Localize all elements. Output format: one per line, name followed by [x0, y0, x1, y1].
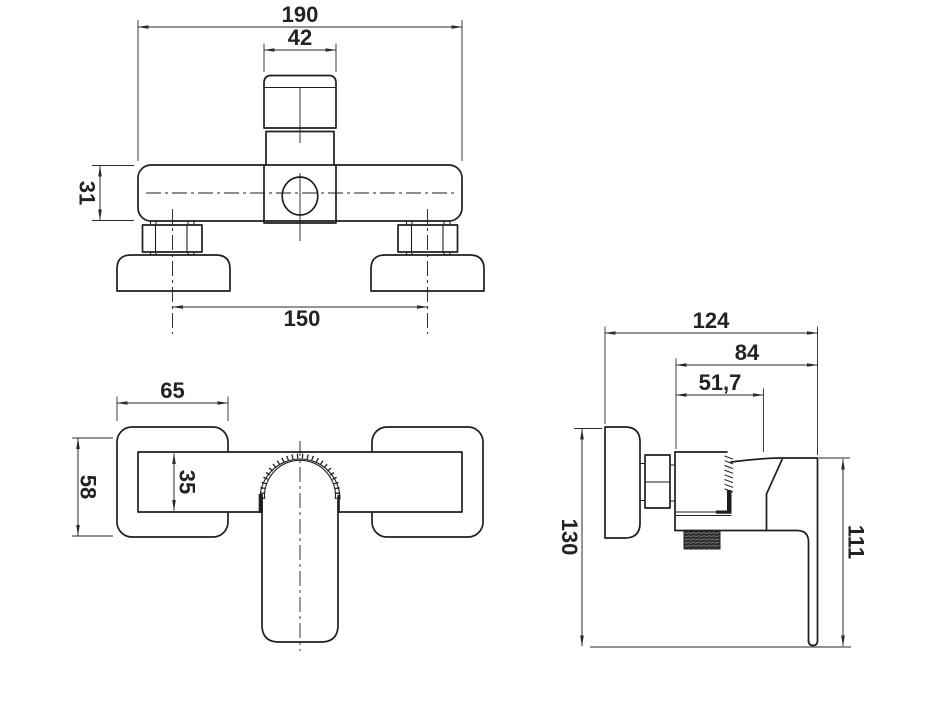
dim-label-front-depth: 51,7 [699, 370, 742, 395]
dim-body-height: 31 [75, 166, 135, 221]
dim-label-total-height: 130 [557, 519, 582, 556]
dim-label-total-width: 190 [282, 2, 319, 27]
dim-label-body-height: 31 [75, 181, 100, 205]
front-right-mount [371, 209, 484, 334]
side-nut [645, 455, 675, 508]
dim-label-handle-width: 42 [288, 25, 312, 50]
side-threaded-outlet [684, 531, 720, 549]
dim-label-total-depth: 124 [693, 308, 730, 333]
technical-drawing-canvas: 190 42 31 150 [0, 0, 940, 705]
dim-mount-spacing: 150 [173, 306, 428, 331]
side-view: 124 84 51,7 130 111 [557, 308, 869, 647]
front-view: 190 42 31 150 [75, 2, 485, 334]
dim-label-body-depth-side: 84 [735, 340, 760, 365]
dim-escutcheon-width: 65 [117, 378, 228, 421]
top-lever-grip [262, 496, 338, 642]
dim-handle-height: 111 [819, 458, 869, 646]
dim-label-escutcheon-width: 65 [160, 378, 184, 403]
dim-label-mount-spacing: 150 [284, 306, 321, 331]
dim-label-handle-height: 111 [844, 525, 869, 559]
side-lever [731, 458, 818, 646]
dim-handle-width: 42 [264, 25, 336, 72]
dim-total-height: 130 [557, 429, 602, 647]
top-view: 65 58 35 [72, 378, 483, 651]
technical-drawing-page: 190 42 31 150 [0, 0, 940, 705]
dim-label-escutcheon-height: 58 [76, 475, 101, 499]
dim-front-depth: 51,7 [676, 370, 764, 452]
dim-label-body-depth-top: 35 [175, 470, 200, 494]
front-left-mount [117, 209, 230, 334]
dim-escutcheon-height: 58 [72, 438, 113, 536]
side-escutcheon [605, 427, 640, 538]
